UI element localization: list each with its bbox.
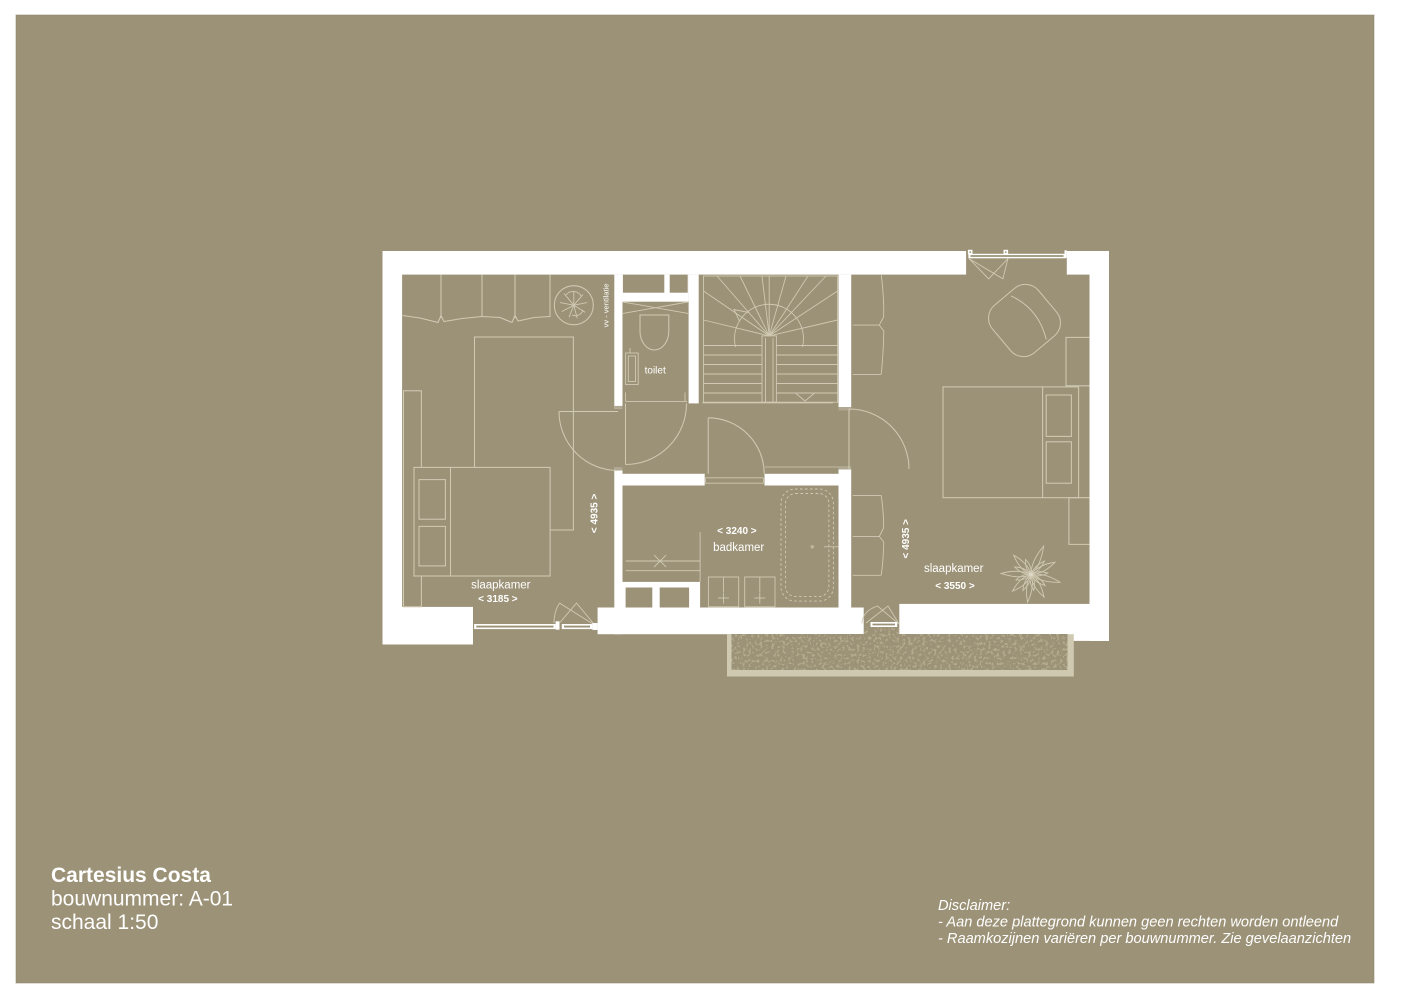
svg-text:toilet: toilet: [645, 366, 666, 377]
svg-text:- Raamkozijnen variëren per bo: - Raamkozijnen variëren per bouwnummer. …: [938, 931, 1351, 947]
svg-text:bouwnummer: A-01: bouwnummer: A-01: [51, 888, 233, 911]
svg-text:< 3550 >: < 3550 >: [935, 581, 975, 592]
svg-text:- Aan deze plattegrond kunnen: - Aan deze plattegrond kunnen geen recht…: [938, 915, 1339, 931]
svg-text:badkamer: badkamer: [713, 542, 764, 554]
svg-text:Disclaimer:: Disclaimer:: [938, 898, 1010, 914]
svg-text:slaapkamer: slaapkamer: [924, 563, 984, 575]
svg-text:vv - ventilatie: vv - ventilatie: [602, 284, 611, 328]
svg-text:slaapkamer: slaapkamer: [471, 580, 531, 592]
svg-text:schaal 1:50: schaal 1:50: [51, 911, 158, 934]
svg-text:< 4935 >: < 4935 >: [590, 493, 601, 533]
svg-text:< 3185 >: < 3185 >: [478, 594, 518, 605]
svg-text:< 4935 >: < 4935 >: [901, 519, 912, 559]
svg-text:< 3240 >: < 3240 >: [717, 526, 757, 537]
svg-text:Cartesius Costa: Cartesius Costa: [51, 864, 211, 887]
